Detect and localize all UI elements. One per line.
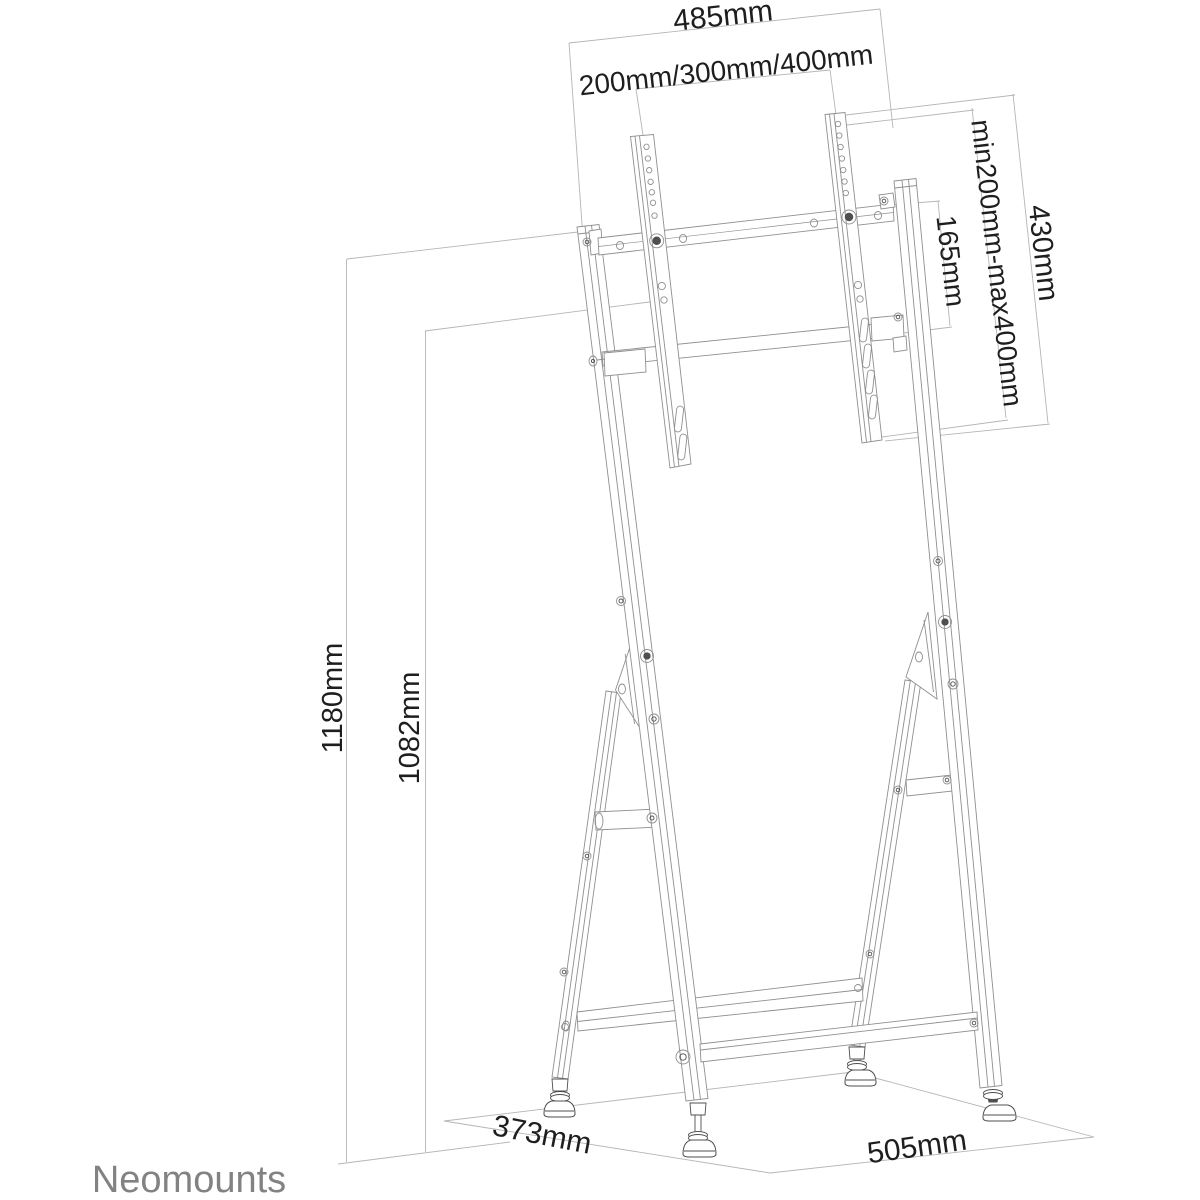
svg-text:1082mm: 1082mm [394, 672, 426, 785]
svg-text:Neomounts: Neomounts [92, 1159, 286, 1200]
svg-text:1180mm: 1180mm [317, 643, 349, 754]
